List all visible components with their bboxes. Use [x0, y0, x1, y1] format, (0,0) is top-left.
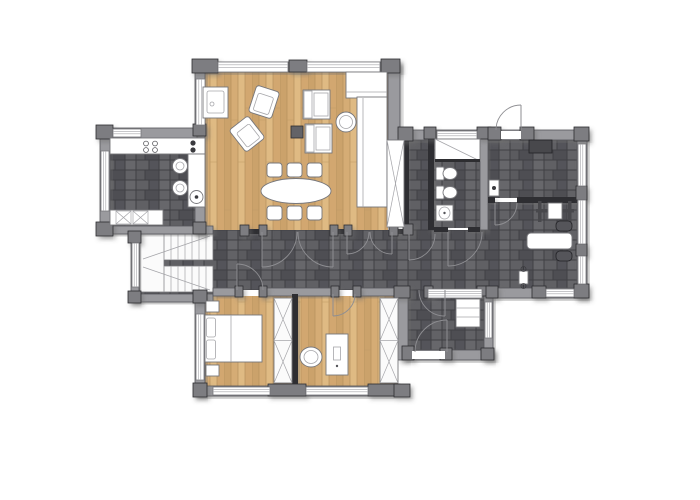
- window-entry-right: [485, 302, 492, 338]
- window-kitchen-left: [101, 151, 109, 211]
- toilet: [436, 167, 457, 180]
- door-entrance-north: [496, 105, 521, 130]
- dining-table: [261, 179, 331, 204]
- nightstand-2: [206, 365, 219, 376]
- window-kitchen-top: [113, 129, 141, 137]
- window-living-top-1: [218, 62, 288, 72]
- gym-washbasin: [489, 180, 499, 196]
- hall-strip-floor: [409, 140, 428, 232]
- window-wing-right-3: [578, 256, 586, 284]
- window-bedroom-bottom: [213, 387, 270, 395]
- window-living-top-2: [307, 62, 380, 72]
- kitchen-counter-top: [110, 138, 205, 154]
- bathroom-left-wall: [428, 138, 434, 230]
- shower: [435, 139, 480, 162]
- media-cabinet: [203, 87, 228, 118]
- entrance-cabinet-dark: [529, 140, 552, 153]
- coffee-table-dark: [291, 126, 303, 138]
- bidet: [436, 186, 457, 199]
- lounge-chair-1: [303, 90, 330, 119]
- bedroom-closet: [274, 298, 292, 383]
- window-wing-right-2: [578, 200, 586, 244]
- entry-cabinet: [456, 299, 480, 327]
- window-bedroom-left: [196, 314, 204, 380]
- window-fitness-bottom: [546, 289, 574, 297]
- window-office-bottom: [306, 387, 368, 395]
- glazing-entry-top: [428, 289, 482, 298]
- wardrobe-living: [387, 140, 404, 227]
- office-chair: [300, 347, 322, 367]
- bathroom-sink: [436, 205, 453, 221]
- entry-bottom-door-gap: [412, 351, 445, 359]
- office-closet: [380, 298, 398, 383]
- window-stairs-left: [132, 243, 139, 287]
- kitchen-counter-bottom: [110, 210, 163, 225]
- hall-strip-partition: [404, 140, 409, 229]
- bed: [205, 315, 262, 362]
- floor-plan-canvas: [0, 0, 700, 500]
- floor-plan: [0, 0, 700, 500]
- side-table-round: [336, 112, 356, 132]
- nightstand-1: [206, 301, 219, 312]
- lounge-chair-2: [305, 124, 332, 153]
- entrance-top-door-gap: [501, 131, 521, 139]
- window-wing-top: [437, 131, 477, 139]
- bathroom-right-wall: [480, 138, 488, 230]
- bedroom-office-divider-wall: [292, 294, 298, 386]
- desk: [326, 334, 348, 375]
- kitchen-peninsula: [188, 154, 205, 207]
- window-wing-right-1: [578, 144, 586, 186]
